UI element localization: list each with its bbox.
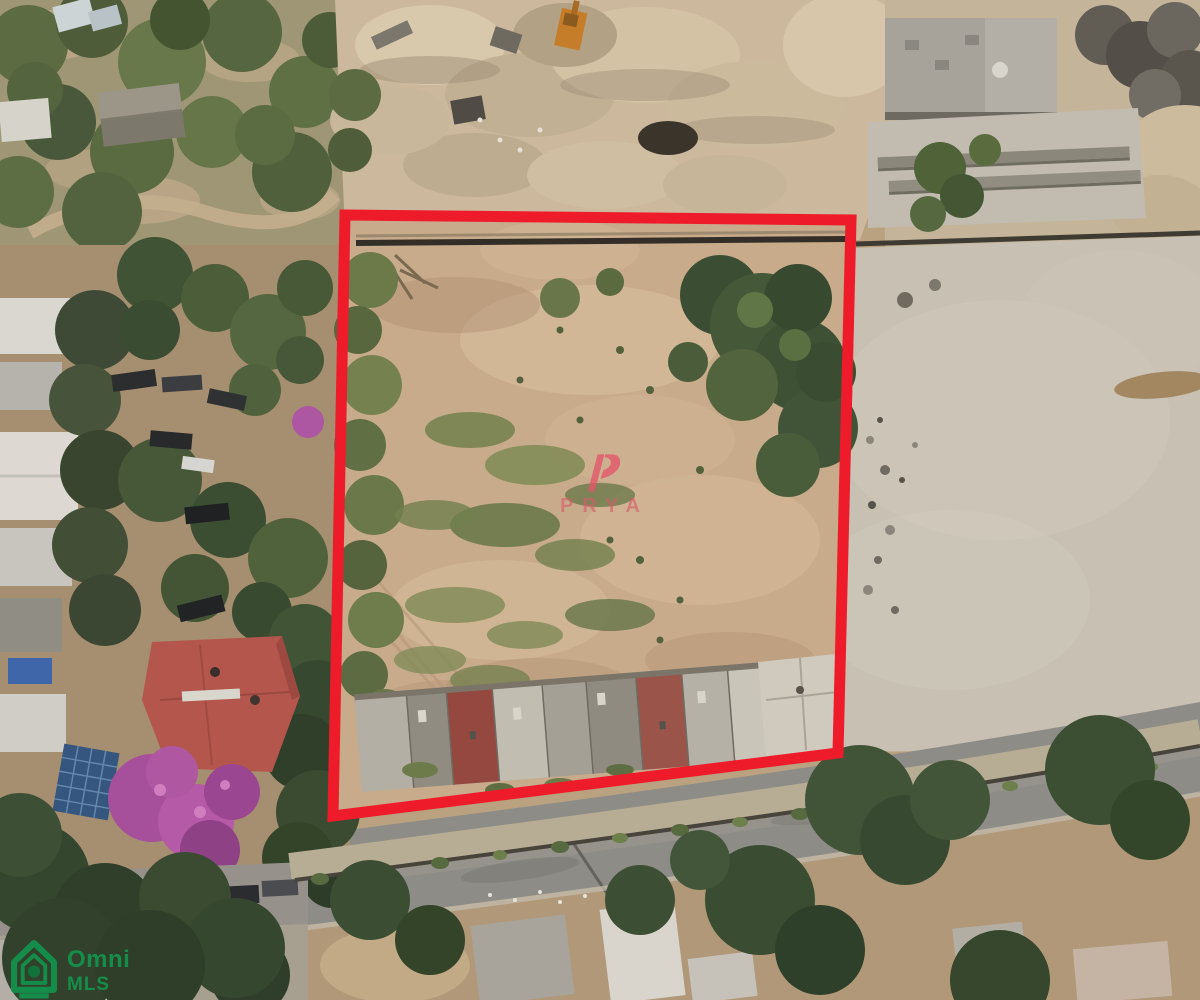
terrain-left-residential [0,237,362,1000]
terrain-gravel-yard [328,0,907,240]
terrain-parcel [333,215,858,816]
terrain-top-right [856,0,1200,248]
terrain-top-left-scrub [0,0,358,252]
aerial-terrain [0,0,1200,1000]
terrain-right-lot [810,236,1200,758]
aerial-photo: PRYA Omni MLS [0,0,1200,1000]
